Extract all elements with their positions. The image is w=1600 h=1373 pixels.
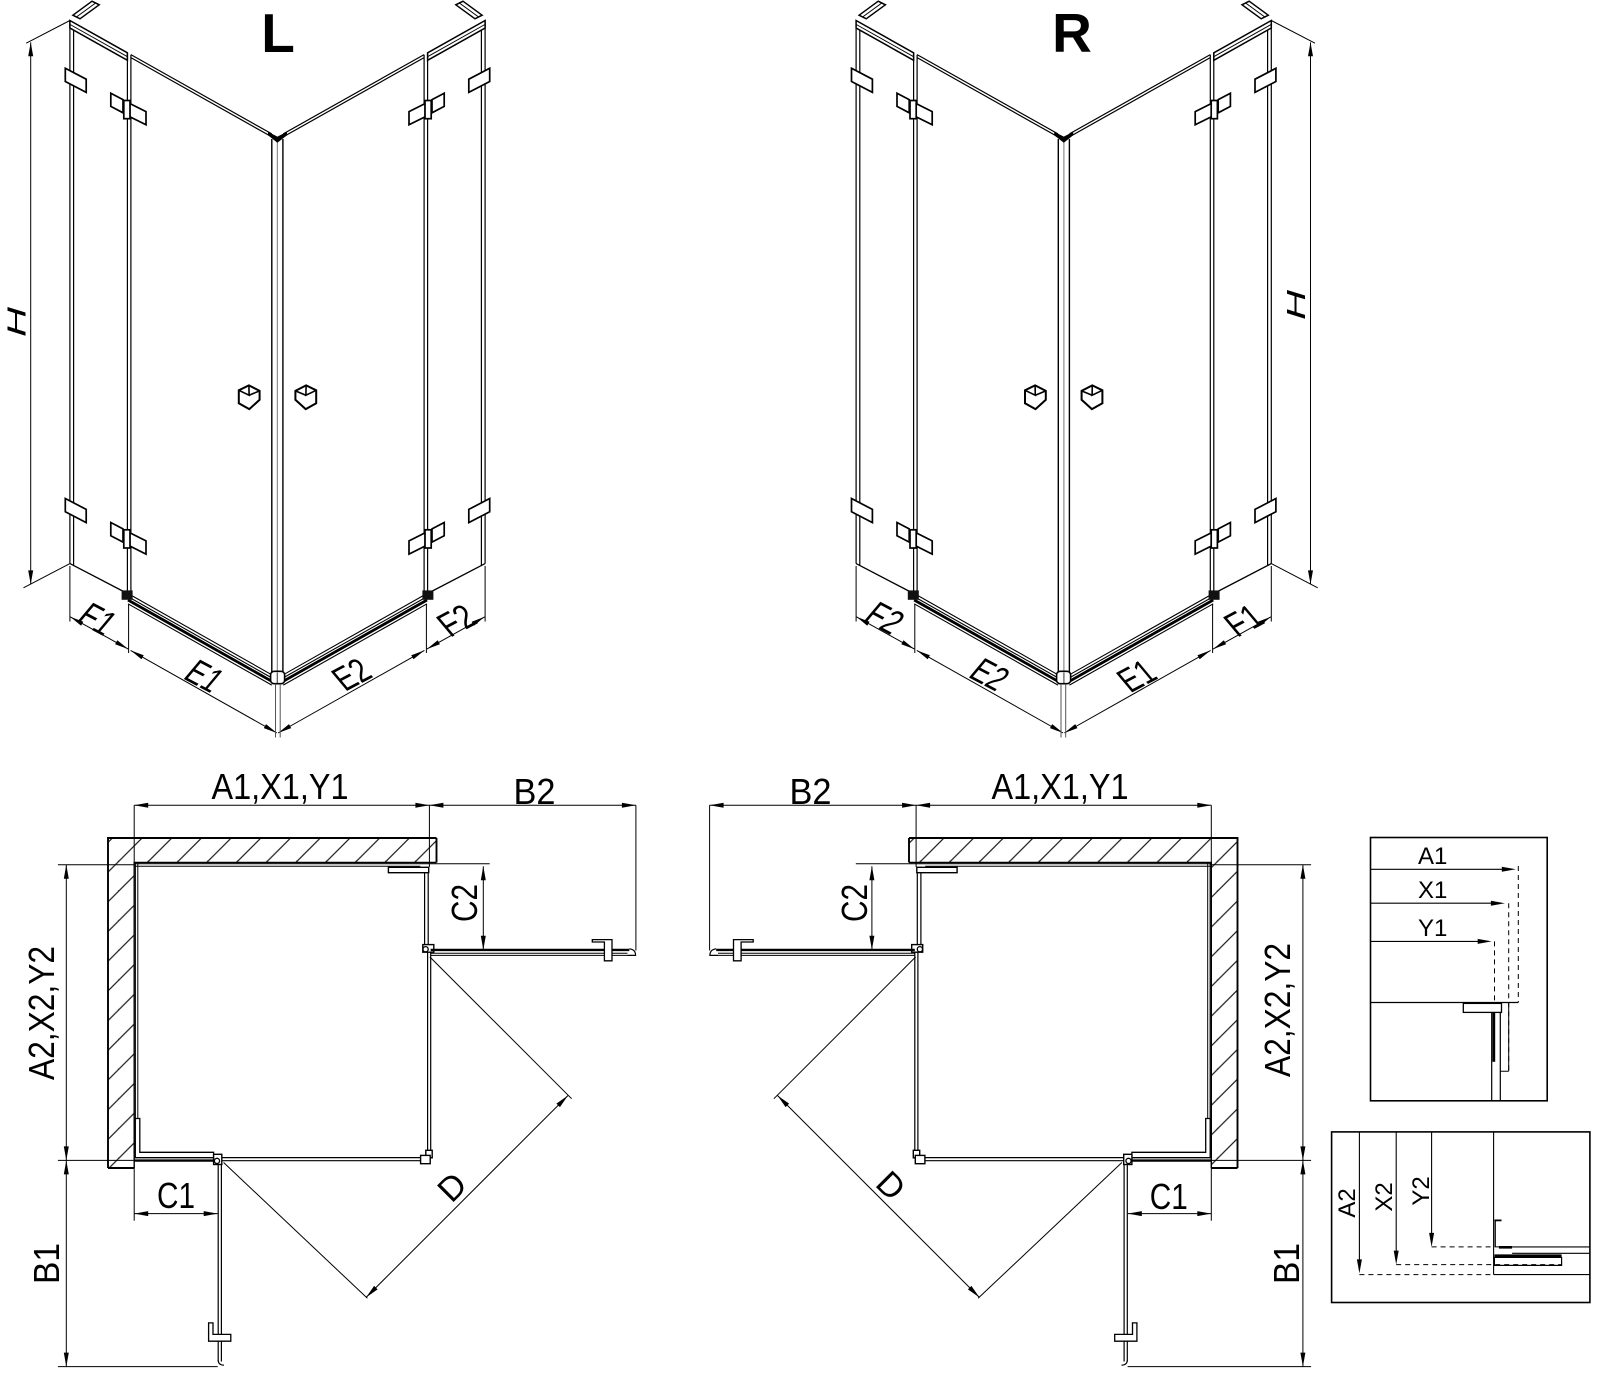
svg-text:Y1: Y1 xyxy=(1418,915,1447,942)
svg-text:A1: A1 xyxy=(1418,843,1447,870)
svg-text:C1: C1 xyxy=(1150,1176,1188,1217)
svg-text:A2: A2 xyxy=(1334,1188,1361,1217)
svg-text:H: H xyxy=(2,307,32,337)
svg-text:H: H xyxy=(1281,290,1311,320)
svg-text:B1: B1 xyxy=(1266,1243,1307,1284)
svg-text:B2: B2 xyxy=(514,771,556,812)
svg-text:Y2: Y2 xyxy=(1408,1176,1435,1205)
svg-text:C2: C2 xyxy=(444,884,485,922)
svg-text:A2,X2,Y2: A2,X2,Y2 xyxy=(1257,943,1298,1077)
svg-text:B1: B1 xyxy=(26,1243,67,1284)
svg-text:L: L xyxy=(261,2,295,64)
svg-text:A2,X2,Y2: A2,X2,Y2 xyxy=(21,946,62,1080)
svg-text:A1,X1,Y1: A1,X1,Y1 xyxy=(212,766,349,807)
svg-text:R: R xyxy=(1052,2,1092,64)
svg-text:A1,X1,Y1: A1,X1,Y1 xyxy=(992,766,1129,807)
svg-text:X2: X2 xyxy=(1371,1182,1398,1211)
svg-text:B2: B2 xyxy=(790,771,832,812)
svg-text:X1: X1 xyxy=(1418,877,1447,904)
svg-text:C2: C2 xyxy=(834,884,875,922)
svg-text:C1: C1 xyxy=(157,1175,195,1216)
